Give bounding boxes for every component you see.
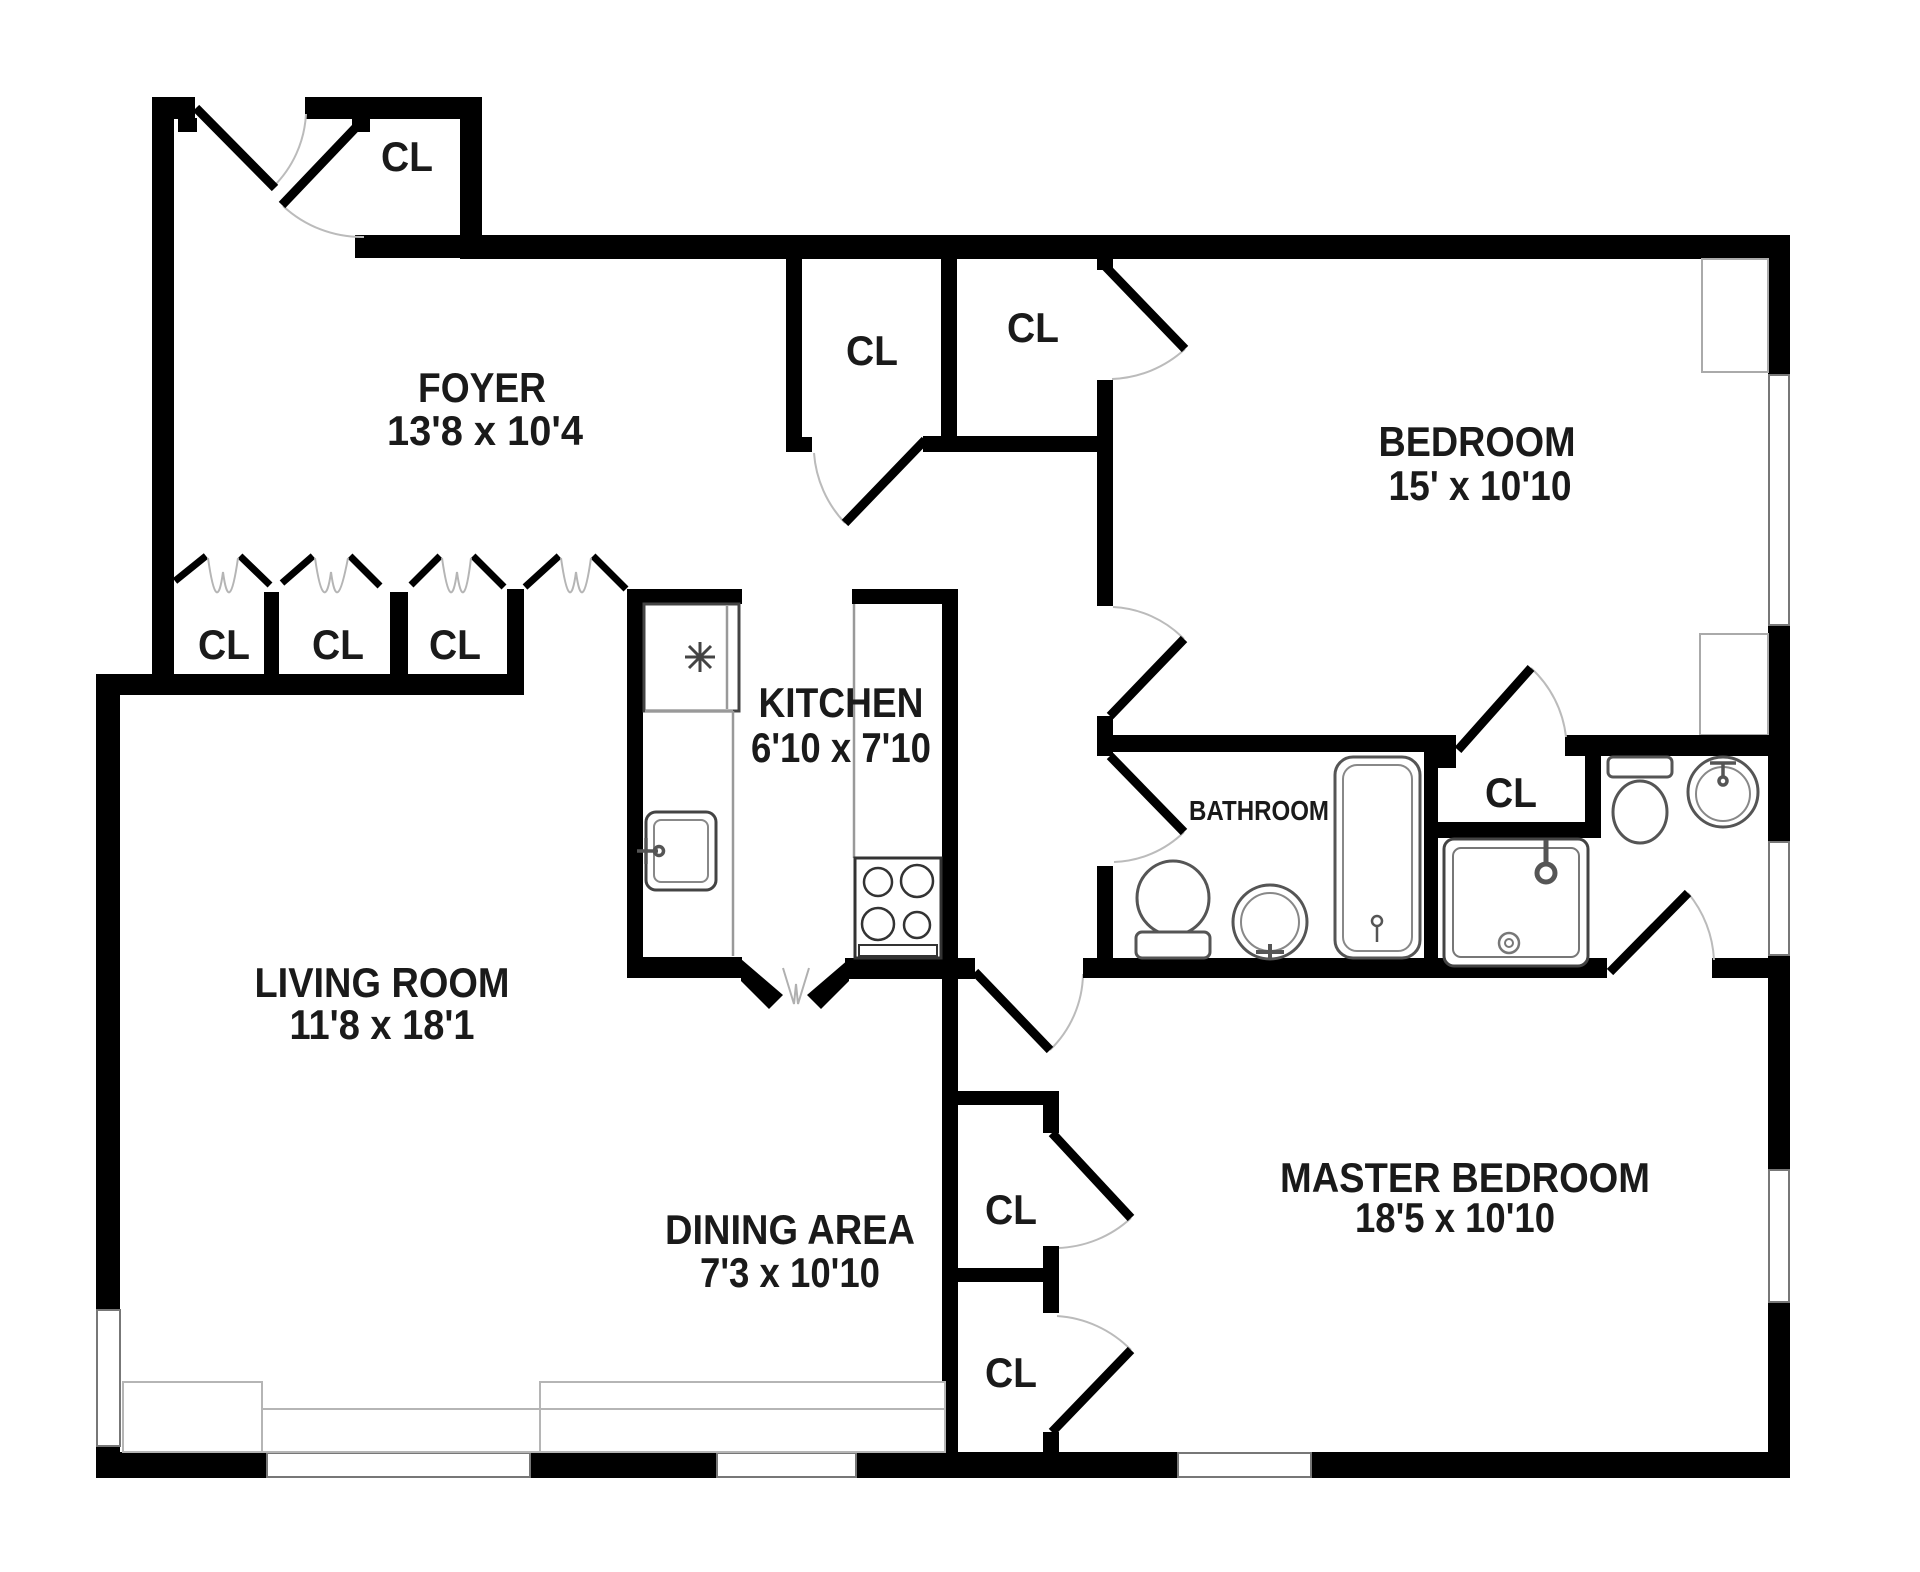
svg-text:7'3 x 10'10: 7'3 x 10'10 [700, 1249, 880, 1296]
svg-text:11'8 x 18'1: 11'8 x 18'1 [290, 1001, 475, 1048]
svg-text:CL: CL [381, 133, 433, 180]
svg-text:CL: CL [1485, 769, 1537, 816]
svg-text:BEDROOM: BEDROOM [1379, 418, 1576, 465]
svg-text:CL: CL [312, 621, 364, 668]
svg-text:CL: CL [985, 1186, 1037, 1233]
svg-text:FOYER: FOYER [418, 364, 546, 411]
svg-text:CL: CL [985, 1349, 1037, 1396]
svg-text:13'8 x 10'4: 13'8 x 10'4 [387, 407, 584, 454]
svg-text:DINING AREA: DINING AREA [665, 1206, 915, 1253]
svg-text:6'10 x 7'10: 6'10 x 7'10 [751, 724, 931, 771]
svg-text:LIVING ROOM: LIVING ROOM [255, 959, 510, 1006]
svg-text:18'5 x 10'10: 18'5 x 10'10 [1355, 1194, 1555, 1241]
svg-text:BATHROOM: BATHROOM [1189, 795, 1329, 826]
svg-text:15' x 10'10: 15' x 10'10 [1389, 462, 1572, 509]
svg-text:CL: CL [1007, 304, 1059, 351]
svg-text:CL: CL [429, 621, 481, 668]
svg-text:KITCHEN: KITCHEN [759, 679, 924, 726]
svg-text:CL: CL [198, 621, 250, 668]
svg-text:CL: CL [846, 327, 898, 374]
